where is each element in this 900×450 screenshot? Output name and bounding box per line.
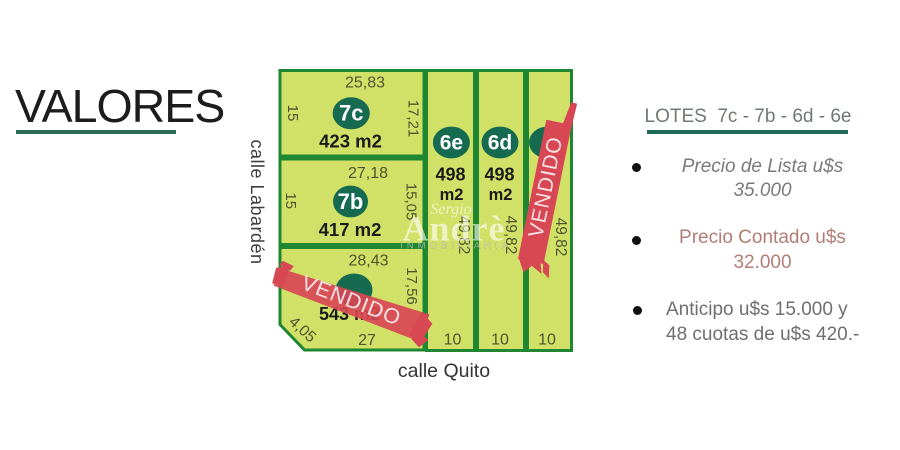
svg-text:49,82: 49,82	[552, 218, 569, 257]
svg-text:7b: 7b	[338, 189, 364, 214]
svg-text:6d: 6d	[488, 132, 513, 155]
svg-text:28,43: 28,43	[348, 253, 388, 270]
svg-text:17,56: 17,56	[403, 267, 420, 305]
svg-text:417 m2: 417 m2	[319, 219, 382, 240]
svg-text:INMOBILIARIA: INMOBILIARIA	[400, 241, 512, 252]
svg-text:10: 10	[538, 332, 556, 349]
svg-text:10: 10	[444, 332, 462, 349]
svg-text:m2: m2	[489, 186, 513, 204]
svg-text:6e: 6e	[440, 132, 463, 155]
svg-text:calle Quito: calle Quito	[398, 360, 490, 382]
svg-text:15: 15	[284, 105, 301, 122]
svg-text:17,21: 17,21	[405, 100, 422, 138]
svg-text:498: 498	[484, 165, 514, 185]
svg-text:27,18: 27,18	[348, 165, 388, 182]
svg-text:calle Labardén: calle Labardén	[247, 139, 267, 264]
svg-text:7c: 7c	[339, 101, 363, 126]
svg-text:498: 498	[435, 165, 465, 185]
svg-text:27: 27	[358, 332, 376, 349]
svg-text:10: 10	[491, 332, 509, 349]
svg-text:15: 15	[282, 192, 299, 209]
svg-text:423 m2: 423 m2	[319, 131, 382, 152]
svg-text:25,83: 25,83	[345, 75, 385, 92]
